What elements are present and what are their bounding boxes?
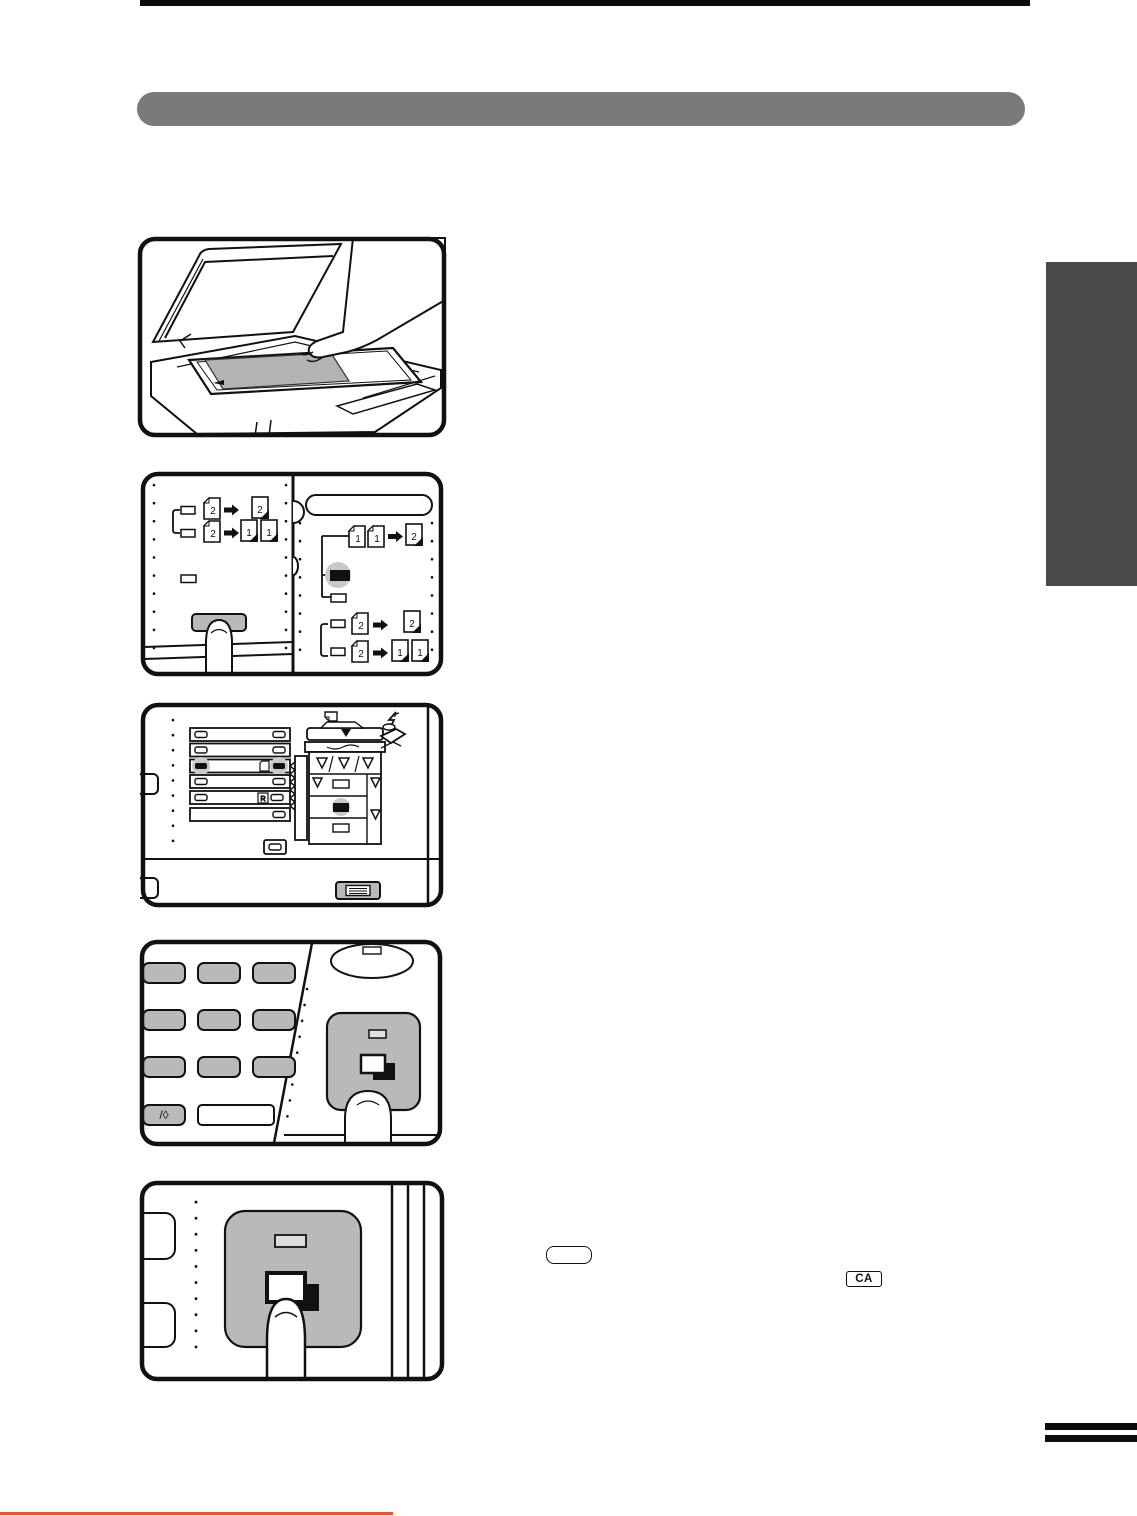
svg-text:1: 1: [246, 528, 252, 539]
tray-panel-illustration: R: [140, 707, 440, 903]
svg-text:1: 1: [374, 534, 380, 545]
page-icon: 2: [252, 497, 269, 519]
svg-text:2: 2: [358, 621, 364, 632]
keypad-illustration: /◊: [143, 943, 437, 1145]
index-bar: [1045, 1423, 1137, 1430]
page-icon: 2: [204, 498, 220, 519]
chapter-side-tab: [1046, 262, 1137, 586]
mode-indicator: [331, 594, 346, 602]
mode-indicator: [331, 620, 345, 628]
start-indicator: [275, 1235, 306, 1247]
start-indicator: [369, 1030, 386, 1038]
arrow-icon: [224, 528, 239, 539]
page-icon: 1: [241, 520, 258, 542]
svg-text:2: 2: [210, 529, 216, 540]
mode-indicator: [181, 507, 195, 515]
finger: [267, 1299, 305, 1380]
lit-indicator: [330, 570, 350, 581]
figure-step5-start-closeup: [139, 1180, 445, 1382]
svg-text:2: 2: [210, 506, 216, 517]
figure-step4-keypad-start: /◊: [139, 939, 443, 1147]
interrupt-key: /◊: [143, 1105, 185, 1125]
tray-select-key: [336, 882, 380, 899]
footer-accent-rule: [0, 1512, 393, 1515]
page-icon: 1: [412, 640, 429, 662]
section-title-bar: [137, 92, 1025, 126]
side-key: [143, 1303, 175, 1347]
blank-key: [198, 1105, 274, 1125]
svg-text:1: 1: [397, 648, 403, 659]
arrow-icon: [373, 648, 388, 659]
index-bar: [1045, 1435, 1137, 1442]
mode-indicator: [181, 575, 196, 583]
lit-indicator: [195, 763, 207, 769]
arrow-icon: [224, 505, 239, 516]
copy-counter-display: [331, 944, 413, 978]
start-closeup-illustration: [143, 1184, 424, 1380]
svg-text:2: 2: [409, 619, 415, 630]
bypass-indicator-box: [264, 840, 286, 854]
duplex-panel-illustration: 2 2 2 1 1: [144, 475, 432, 675]
finger: [345, 1091, 391, 1145]
arrow-icon: [388, 531, 403, 542]
r-paper-icon: R: [258, 793, 268, 803]
display-window: [306, 495, 432, 515]
page-icon: 2: [352, 613, 368, 634]
interrupt-key-glyph: /◊: [159, 1108, 168, 1122]
finger: [206, 620, 232, 675]
svg-text:2: 2: [358, 649, 364, 660]
top-rule: [140, 0, 1030, 6]
svg-text:R: R: [260, 796, 265, 803]
svg-text:2: 2: [257, 505, 263, 516]
inline-blank-key: [546, 1246, 592, 1264]
mode-indicator: [331, 648, 345, 656]
page-icon: 2: [404, 611, 421, 633]
platen-illustration: [151, 238, 445, 436]
page-icon: 2: [352, 641, 368, 662]
page-icon: 2: [406, 524, 423, 546]
paper-size-rows: R: [190, 728, 290, 821]
svg-text:1: 1: [266, 528, 272, 539]
paper-icon: [325, 712, 337, 721]
page-icon: 2: [204, 521, 220, 542]
mode-indicator: [181, 530, 195, 538]
svg-text:1: 1: [417, 648, 423, 659]
page-icon: 1: [261, 520, 278, 542]
figure-step3-tray-panel: R: [140, 702, 444, 908]
copier-diagram: [290, 712, 405, 844]
svg-text:1: 1: [355, 534, 361, 545]
lit-indicator: [333, 803, 349, 812]
numeric-keys: [143, 963, 295, 1077]
page-icon: 1: [349, 526, 365, 547]
manual-page: 2 2 2 1 1: [0, 0, 1137, 1516]
figure-step2-duplex-panel: 2 2 2 1 1: [140, 471, 444, 677]
inline-clear-all-key: CA: [846, 1271, 882, 1287]
lit-indicator: [273, 763, 285, 769]
page-icon: 1: [368, 526, 384, 547]
side-key: [143, 1213, 175, 1259]
page-icon: 1: [392, 640, 409, 662]
svg-text:2: 2: [411, 532, 417, 543]
arrow-icon: [373, 620, 388, 631]
figure-step1-place-original: [137, 236, 447, 438]
